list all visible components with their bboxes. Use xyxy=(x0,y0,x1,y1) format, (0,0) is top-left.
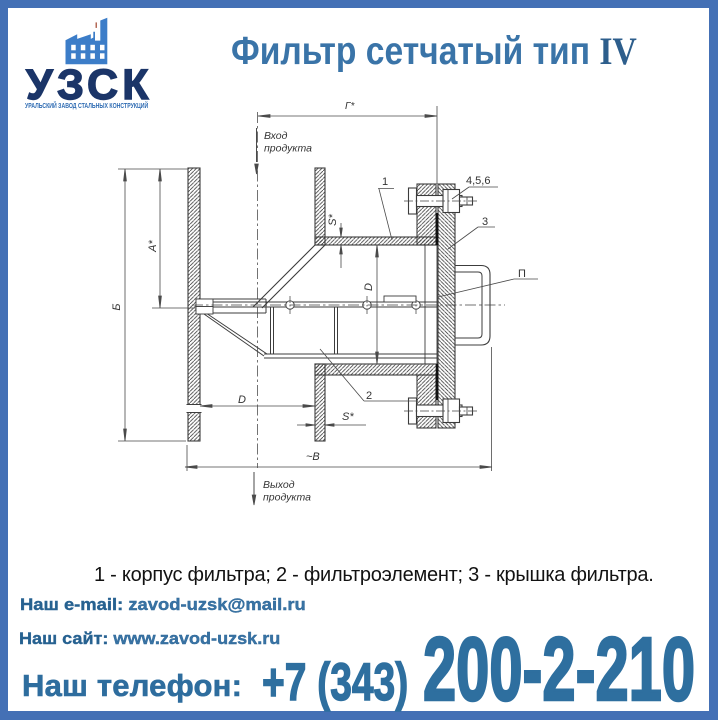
svg-text:А*: А* xyxy=(147,239,159,252)
svg-text:~В: ~В xyxy=(306,451,320,463)
svg-text:Вход: Вход xyxy=(264,130,288,142)
svg-text:2: 2 xyxy=(366,390,372,402)
svg-text:S*: S* xyxy=(327,213,339,225)
svg-text:П: П xyxy=(518,268,526,280)
svg-text:3: 3 xyxy=(482,216,488,228)
svg-text:1: 1 xyxy=(382,176,388,188)
svg-text:Б: Б xyxy=(111,303,123,310)
svg-text:продукта: продукта xyxy=(264,143,312,155)
svg-text:4,5,6: 4,5,6 xyxy=(466,175,490,187)
svg-text:Г*: Г* xyxy=(345,101,355,112)
svg-text:D: D xyxy=(238,394,246,406)
svg-text:S*: S* xyxy=(342,411,354,423)
svg-text:D: D xyxy=(363,283,375,291)
svg-text:продукта: продукта xyxy=(263,492,311,504)
svg-text:Выход: Выход xyxy=(263,479,295,491)
